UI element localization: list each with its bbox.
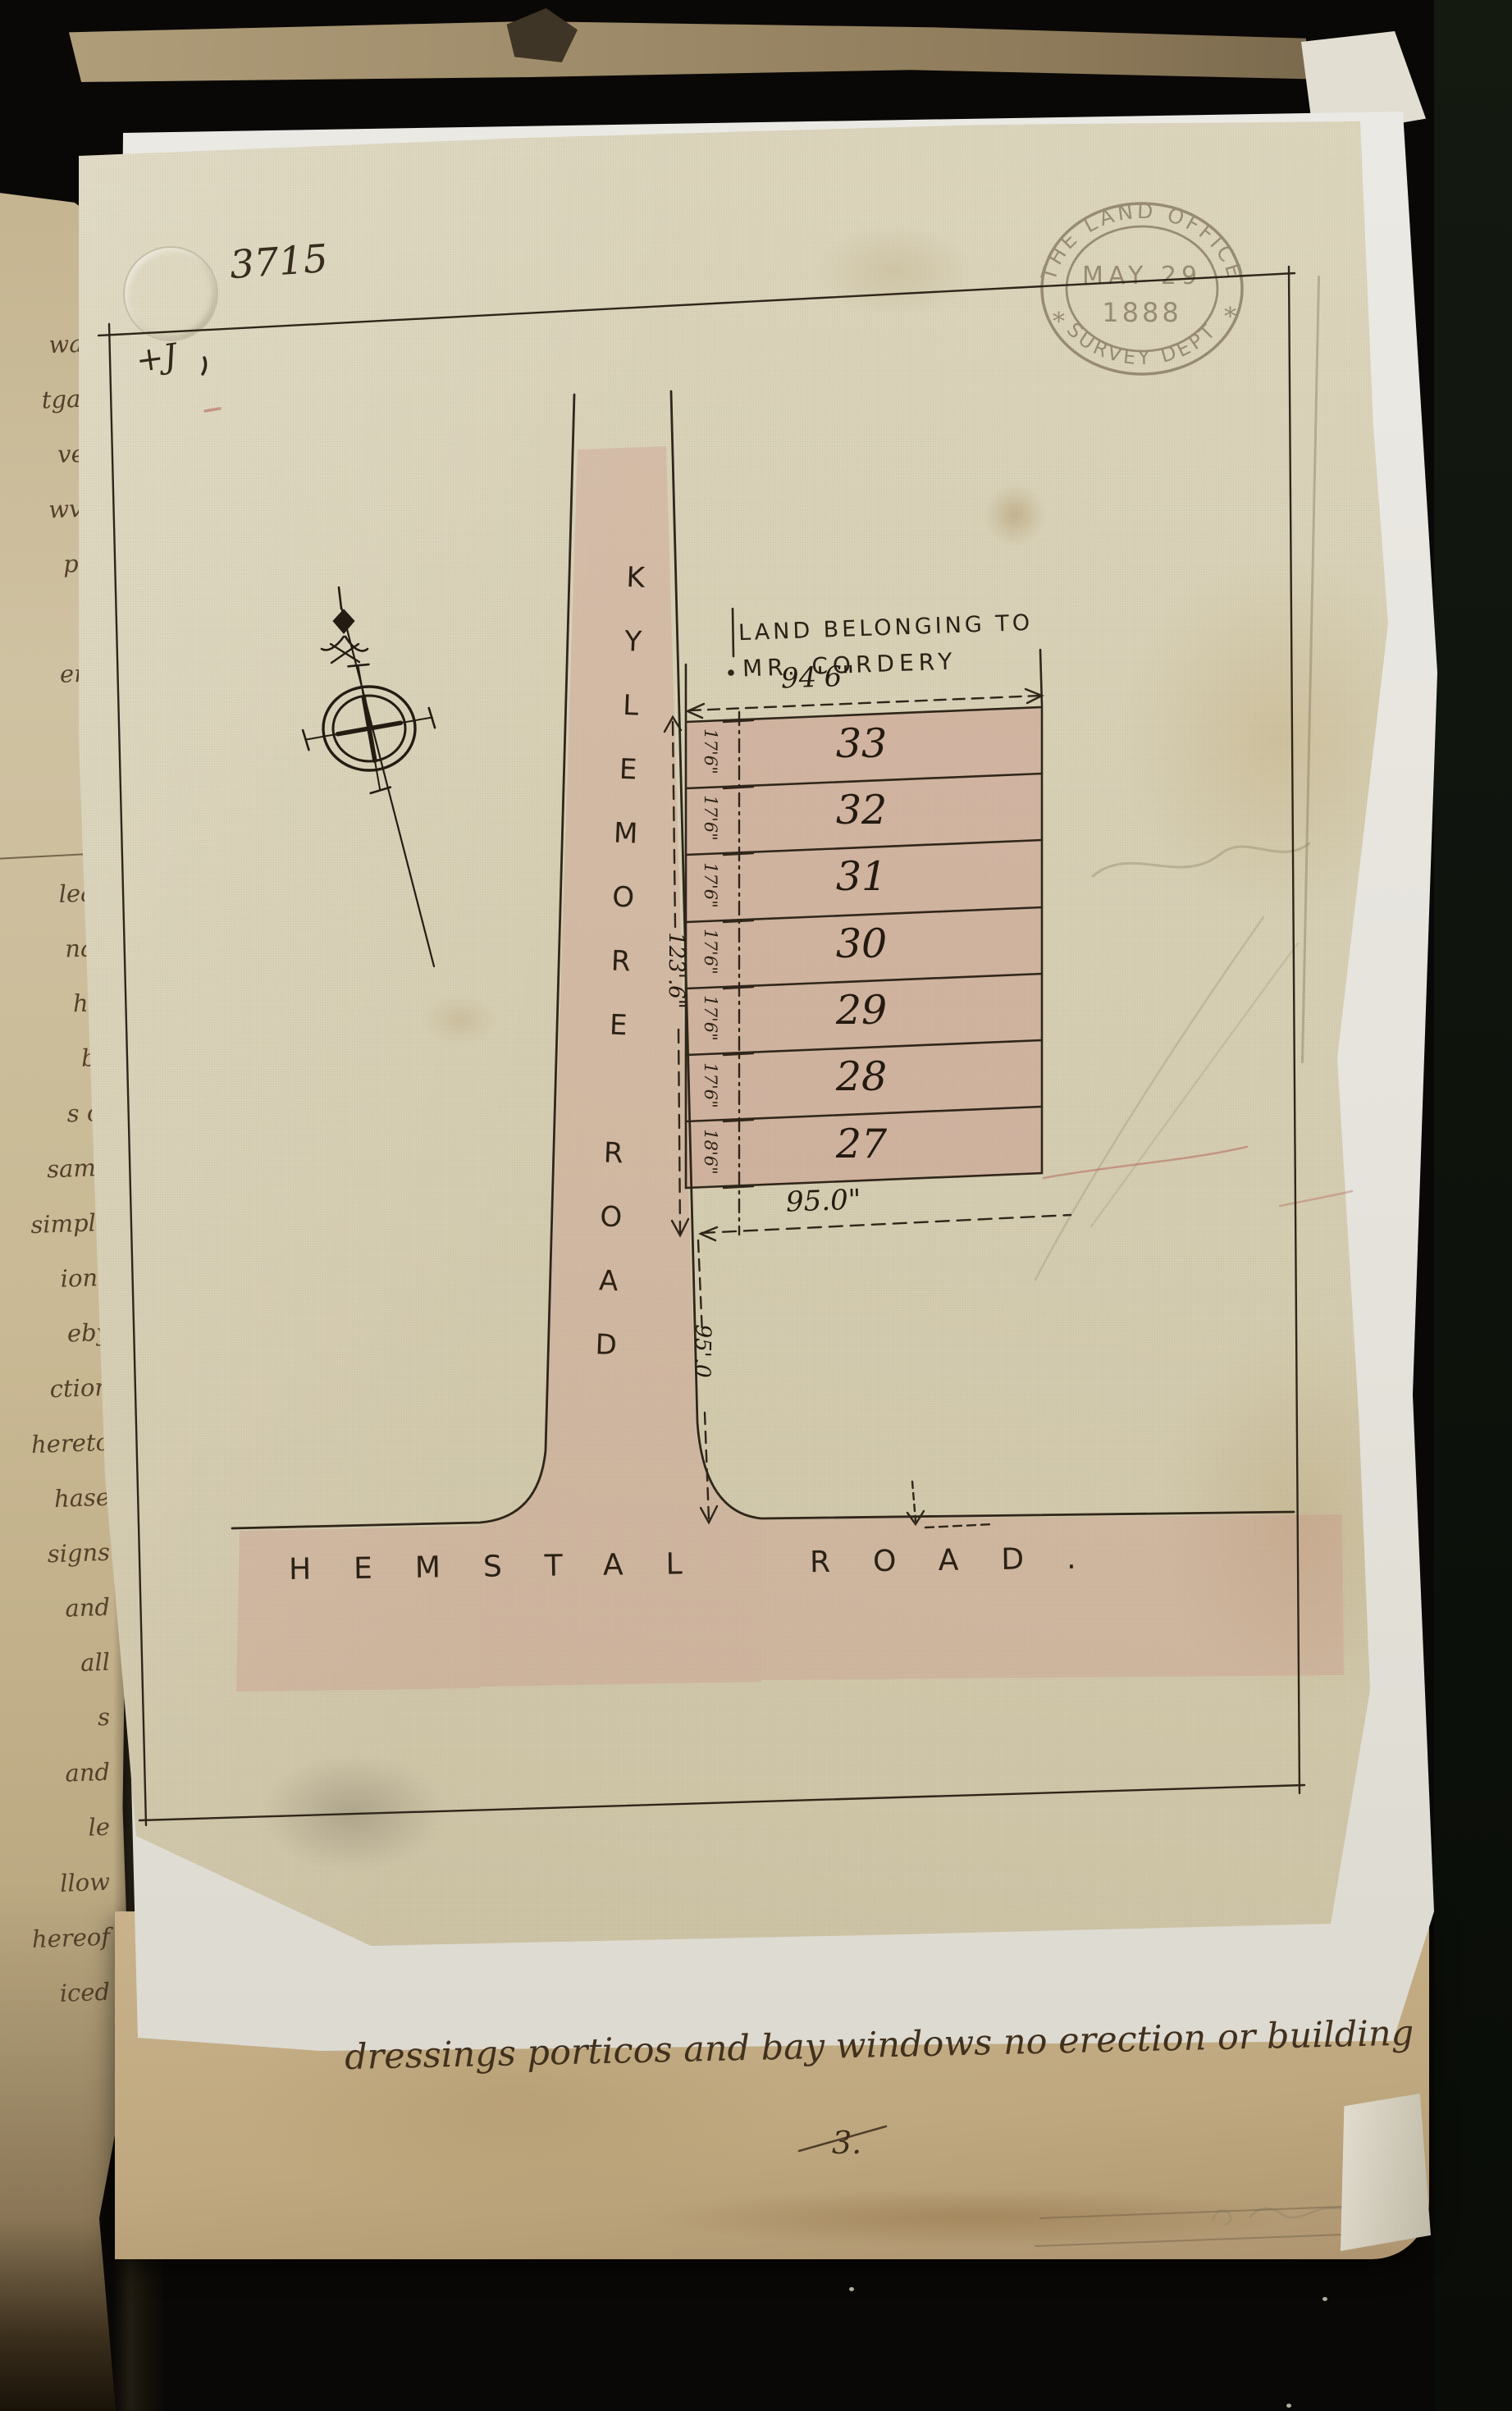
- plot-number: 32: [804, 787, 919, 833]
- margin-text-fragment: signs: [1, 1538, 110, 1570]
- embossed-blind-stamp: [123, 246, 218, 341]
- plot-number: 31: [804, 853, 919, 900]
- margin-text-fragment: simple: [1, 1208, 110, 1240]
- corner-ink-mark: +J: [134, 337, 179, 380]
- margin-text-fragment: llow: [1, 1868, 110, 1900]
- plot-depth-label: 17'6": [701, 919, 720, 984]
- plot-number: 29: [804, 987, 919, 1034]
- dust-speck: [1385, 2148, 1390, 2152]
- margin-text-fragment: all: [1, 1648, 110, 1680]
- plot-number: 30: [804, 920, 919, 967]
- plot-number: 28: [804, 1053, 919, 1100]
- dimension-bottom-width: 95.0": [785, 1183, 861, 1218]
- margin-text-fragment: hase: [1, 1483, 110, 1515]
- torn-paper-edge-top: [69, 21, 1306, 82]
- dust-speck: [1322, 2297, 1327, 2301]
- margin-text-fragment: and: [1, 1758, 110, 1790]
- margin-text-fragment: eby: [1, 1318, 110, 1350]
- dust-speck: [1286, 2404, 1291, 2408]
- dust-speck: [849, 2287, 854, 2291]
- page-number: 3.: [832, 2125, 861, 2161]
- margin-text-fragment: ction: [1, 1373, 110, 1405]
- plot-depth-label: 17'6": [701, 719, 720, 784]
- plot-depth-label: 17'6": [701, 985, 720, 1051]
- margin-text-fragment: hereof: [1, 1923, 110, 1955]
- dimension-road-frontage: 95'.0: [689, 1300, 715, 1403]
- folded-paper-corner: [1341, 2094, 1431, 2251]
- plot-depth-label: 18'6": [701, 1119, 720, 1185]
- plot-number: 27: [804, 1121, 919, 1167]
- margin-text-fragment: and: [1, 1593, 110, 1625]
- book-cover-edge: [1434, 0, 1512, 2411]
- margin-text-fragment: hereto: [1, 1428, 110, 1460]
- plot-number: 33: [804, 720, 919, 767]
- margin-text-fragment: s: [1, 1703, 110, 1735]
- margin-text-fragment: le: [1, 1813, 110, 1845]
- margin-text-fragment: iced: [1, 1978, 110, 2010]
- reference-number: 3715: [228, 236, 329, 288]
- plot-depth-label: 17'6": [701, 1053, 720, 1118]
- archive-book-photo: in ward tgage very wvey plot ad emy le n…: [0, 0, 1512, 2411]
- dimension-total-depth: 123'.6": [664, 920, 688, 1021]
- plot-depth-label: 17'6": [701, 852, 720, 918]
- dimension-top-width: 94'6": [780, 660, 855, 695]
- plot-depth-label: 17'6": [701, 785, 720, 851]
- margin-text-fragment: ions: [1, 1263, 110, 1295]
